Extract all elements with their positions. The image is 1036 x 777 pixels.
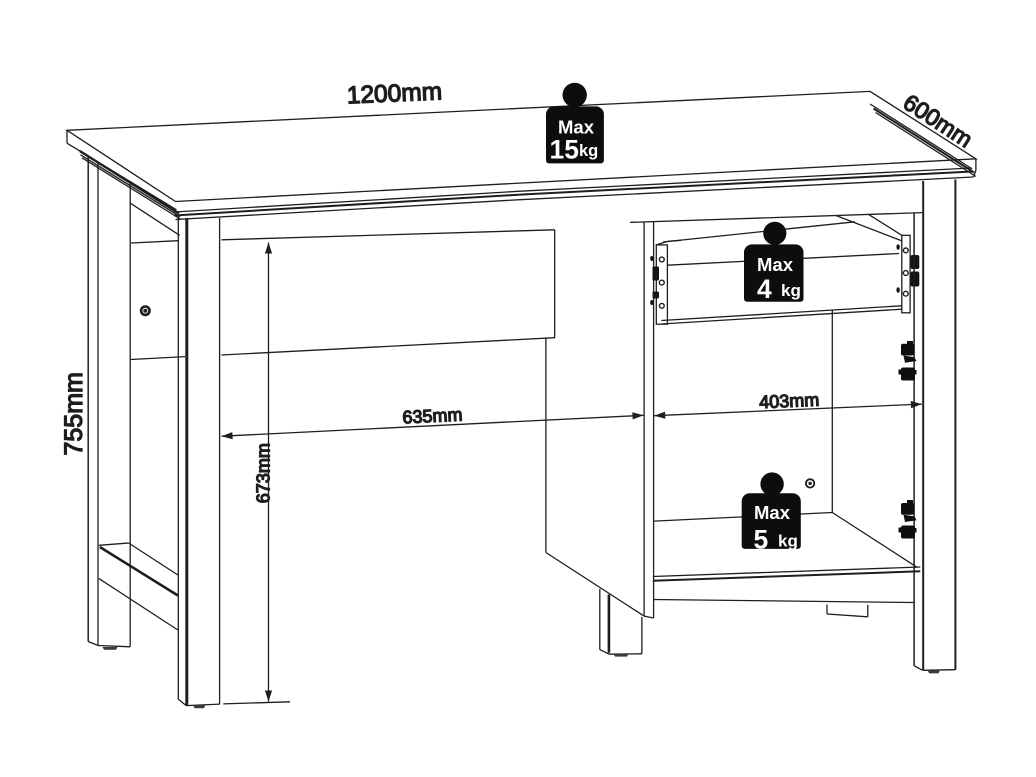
svg-text:kg: kg xyxy=(778,531,798,550)
svg-text:kg: kg xyxy=(579,142,598,160)
svg-text:5: 5 xyxy=(754,525,769,555)
svg-text:403mm: 403mm xyxy=(759,390,820,413)
svg-text:1200mm: 1200mm xyxy=(346,78,442,109)
svg-text:Max: Max xyxy=(757,254,794,275)
svg-text:4: 4 xyxy=(757,274,772,304)
svg-text:kg: kg xyxy=(781,281,801,300)
svg-text:755mm: 755mm xyxy=(60,372,88,455)
svg-text:Max: Max xyxy=(754,502,791,523)
svg-text:635mm: 635mm xyxy=(402,405,463,428)
svg-text:673mm: 673mm xyxy=(254,443,274,503)
svg-text:15: 15 xyxy=(550,135,579,165)
